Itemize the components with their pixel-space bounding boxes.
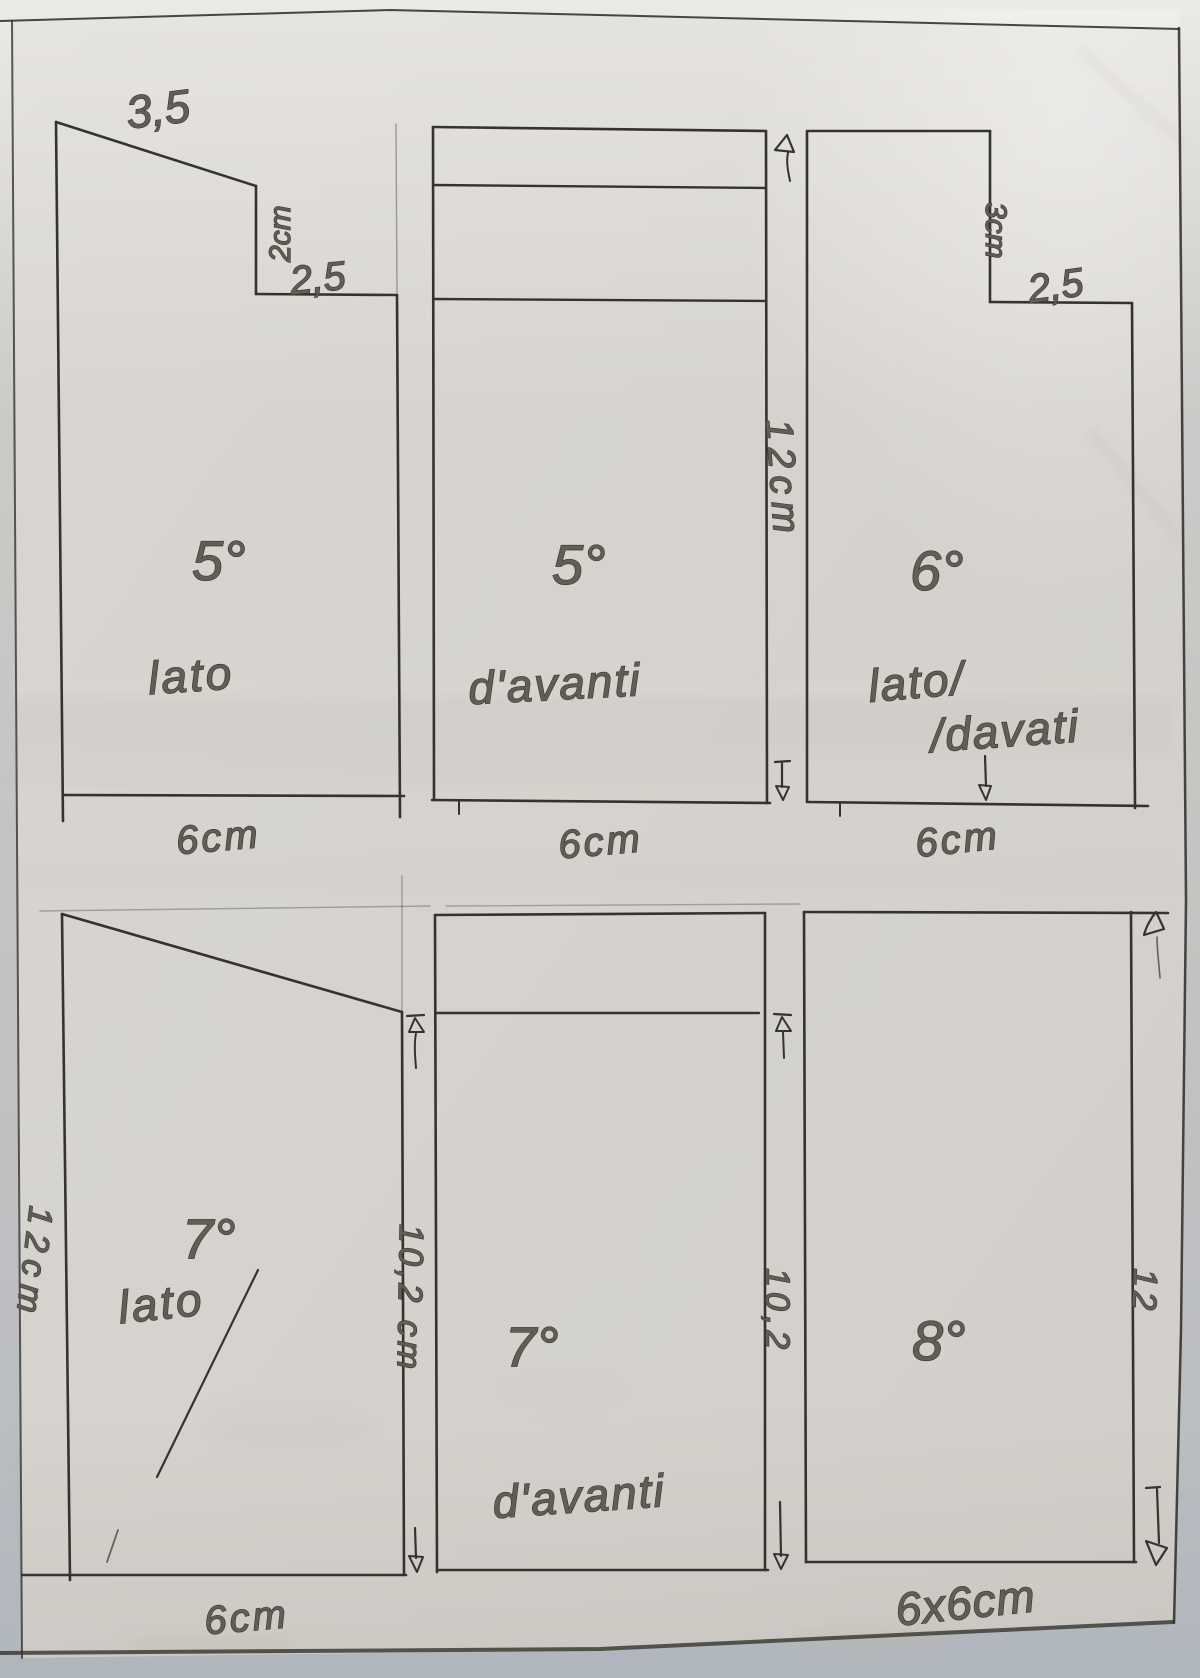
svg-text:6°: 6° xyxy=(910,539,964,602)
svg-text:2,5: 2,5 xyxy=(287,254,349,304)
svg-text:2cm: 2cm xyxy=(264,205,297,263)
svg-text:6cm: 6cm xyxy=(556,816,644,867)
svg-text:lato: lato xyxy=(116,1273,207,1334)
svg-text:6cm: 6cm xyxy=(913,813,1002,866)
svg-text:5°: 5° xyxy=(192,529,246,592)
svg-text:5°: 5° xyxy=(552,533,606,596)
svg-text:3,5: 3,5 xyxy=(123,79,193,138)
svg-text:2,5: 2,5 xyxy=(1024,260,1087,312)
svg-text:7°: 7° xyxy=(182,1207,236,1270)
svg-text:lato/: lato/ xyxy=(866,652,969,712)
svg-text:6cm: 6cm xyxy=(174,812,262,863)
svg-text:6cm: 6cm xyxy=(203,1592,291,1643)
svg-text:12: 12 xyxy=(1124,1268,1164,1315)
svg-text:8°: 8° xyxy=(912,1309,966,1372)
svg-text:d'avanti: d'avanti xyxy=(467,653,643,714)
svg-text:7°: 7° xyxy=(505,1315,559,1378)
svg-text:3cm: 3cm xyxy=(979,202,1012,259)
svg-text:12cm: 12cm xyxy=(757,418,807,542)
svg-text:10,2: 10,2 xyxy=(758,1268,796,1354)
svg-text:/davati: /davati xyxy=(926,700,1082,763)
svg-text:10,2 cm: 10,2 cm xyxy=(389,1224,430,1374)
svg-text:lato: lato xyxy=(146,646,236,704)
